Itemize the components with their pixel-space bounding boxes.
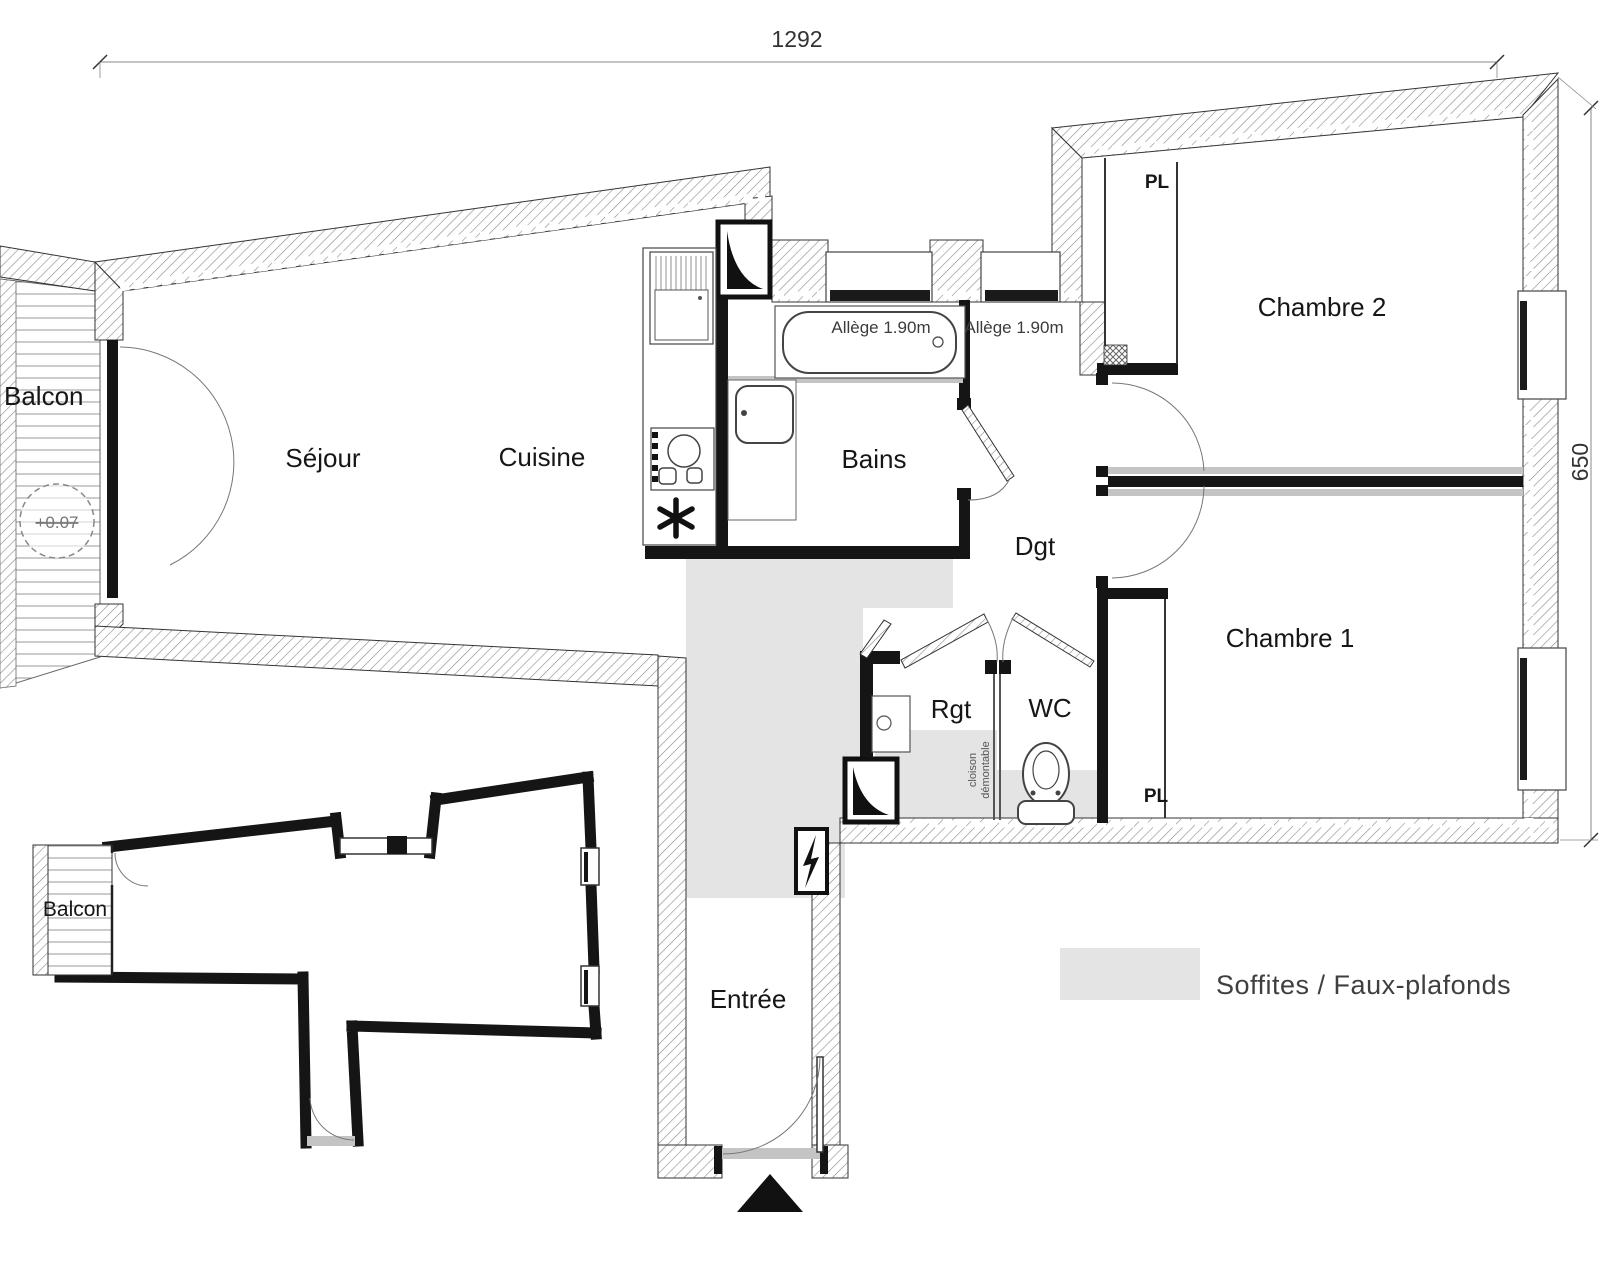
entry-door-leaf (817, 1057, 823, 1152)
pl2-side-line (1176, 162, 1178, 364)
level-value: +0.07 (35, 513, 78, 532)
bains-window-glazing (830, 290, 930, 301)
bains-fixtures (728, 306, 965, 520)
duct-crosshatch (1104, 345, 1127, 365)
entrance-arrow-icon (737, 1174, 803, 1212)
label-dgt: Dgt (1015, 531, 1056, 561)
hinge-post (1096, 485, 1108, 496)
chambre2-window-glazing (1520, 301, 1527, 390)
rgt-door-leaf (901, 614, 988, 668)
balcony-edge (0, 279, 16, 688)
hinge-post (1096, 373, 1108, 385)
neighbour-window (581, 848, 599, 885)
label-pl1: PL (1144, 786, 1169, 807)
cloison-line (999, 674, 1001, 820)
kitchen-fixtures (643, 248, 716, 545)
toilet-cistern (1018, 801, 1074, 824)
hinge-post (957, 488, 971, 500)
label-balcon-top: Balcon (4, 381, 84, 411)
toilet-bolt (1031, 791, 1036, 796)
partition-face (1108, 489, 1523, 496)
entry-door-arc (723, 1057, 820, 1154)
label-cloison-1: cloison (967, 753, 979, 787)
neighbour-balcony-door-arc (115, 853, 148, 886)
wc-door-arc (1003, 616, 1014, 662)
hinge-post (1096, 576, 1108, 588)
balcony-door-leaf (107, 340, 118, 598)
bains-door-arc (968, 478, 1010, 500)
kitchen-bains-wall (716, 297, 728, 558)
dgt-window-glazing (985, 290, 1058, 301)
entry-jamb-left (658, 1145, 722, 1178)
label-rgt: Rgt (931, 694, 972, 724)
neighbour-window (581, 966, 599, 1006)
neighbour-pier (387, 836, 407, 854)
chambre1-door-arc (1112, 486, 1204, 578)
balcony-door-arc (120, 347, 234, 565)
neighbour-door-arc (310, 1098, 354, 1140)
bains-door-leaf (962, 405, 1014, 481)
cooktop (651, 428, 714, 490)
floor-plan-svg: +0.07 (0, 0, 1600, 1266)
chambres-partition-wall (1108, 476, 1523, 487)
neighbour-door-sill (307, 1136, 355, 1146)
neighbour-walls (60, 777, 596, 1143)
label-allege-2: Allège 1.90m (964, 318, 1063, 337)
label-entree: Entrée (710, 984, 787, 1014)
neighbour-window-glazing (584, 852, 588, 882)
chambre2-door-arc (1112, 383, 1204, 471)
balcony-top: +0.07 (0, 279, 100, 688)
hinge-post (1096, 466, 1108, 477)
toilet-bowl (1023, 743, 1069, 805)
pl2-side-line (1104, 158, 1106, 346)
oven-knob (698, 296, 702, 300)
dim-extensions-top (100, 62, 1497, 78)
pl1-top-wall (1108, 588, 1168, 599)
faucet (741, 410, 747, 416)
label-balcon-bottom: Balcon (43, 898, 107, 921)
label-chambre1: Chambre 1 (1226, 623, 1355, 653)
label-sejour: Séjour (285, 443, 360, 473)
wc-door-leaf (1012, 613, 1094, 667)
label-chambre2: Chambre 2 (1258, 292, 1387, 322)
label-cuisine: Cuisine (499, 442, 586, 472)
floor-plan-page: +0.07 (0, 0, 1600, 1266)
entry-door-post (714, 1146, 722, 1174)
neighbour-window-band (340, 838, 432, 854)
legend: Soffites / Faux-plafonds (1060, 948, 1511, 1000)
partition-face (1108, 467, 1523, 474)
dim-value-top: 1292 (771, 26, 822, 52)
hinge-post (999, 660, 1011, 674)
kitchen-bains-bottom-wall (645, 546, 970, 559)
label-bains: Bains (841, 444, 906, 474)
chambre1-window-glazing (1520, 658, 1527, 780)
toilet-bolt (1056, 791, 1061, 796)
label-allege-1: Allège 1.90m (831, 318, 930, 337)
neighbour-window-glazing (584, 970, 588, 1004)
corridor-left-wall (658, 656, 686, 1148)
wc-chambre1-wall (1097, 588, 1108, 823)
label-cloison-2: démontable (980, 741, 992, 799)
legend-label: Soffites / Faux-plafonds (1216, 970, 1511, 1000)
hinge-post (985, 660, 997, 674)
cloison-line (993, 674, 995, 820)
legend-swatch (1060, 948, 1200, 1000)
neighbour-apartment (33, 777, 599, 1146)
sejour-bottom-wall (95, 626, 658, 686)
label-wc: WC (1028, 693, 1071, 723)
dim-value-right: 650 (1567, 443, 1593, 481)
label-pl2: PL (1145, 172, 1170, 193)
rgt-door-arc (986, 618, 997, 662)
bains-right-wall-lower (959, 492, 970, 558)
